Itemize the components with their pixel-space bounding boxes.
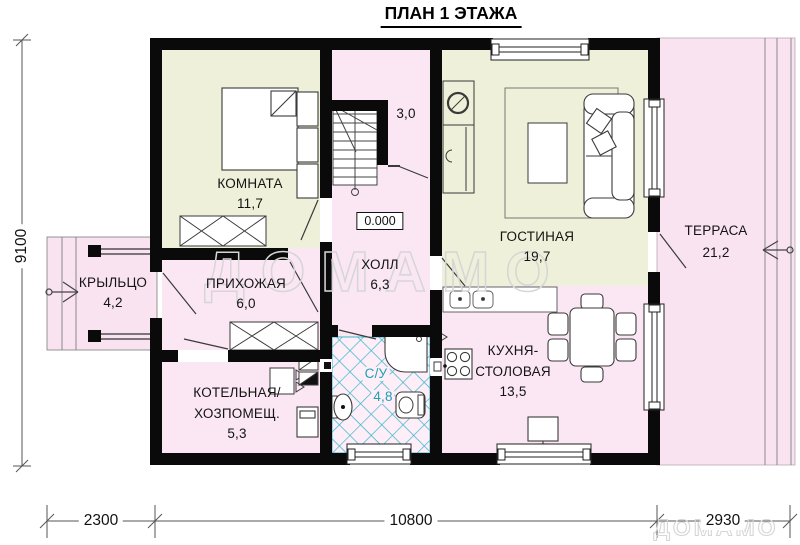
room-label-kotelnaya-line1: КОТЕЛЬНАЯ/ bbox=[193, 386, 280, 400]
room-label-komnata: КОМНАТА bbox=[217, 177, 282, 191]
page-title: ПЛАН 1 ЭТАЖА bbox=[381, 3, 522, 28]
room-area-komnata: 11,7 bbox=[237, 197, 263, 211]
room-area-porch: 4,2 bbox=[103, 296, 122, 310]
washing-machine bbox=[297, 407, 318, 437]
room-area-hall: 6,3 bbox=[370, 278, 389, 292]
room-area-kitchen: 13,5 bbox=[499, 385, 526, 399]
shower bbox=[385, 332, 427, 372]
room-label-sanuzel: С/У bbox=[363, 367, 390, 381]
bathroom-sink bbox=[332, 394, 352, 420]
room-area-prihozhaya: 6,0 bbox=[236, 297, 255, 311]
window-bottom-bathroom bbox=[347, 444, 411, 464]
floor-plan-page: ДОМАМО ДОМАМО ПЛАН 1 ЭТАЖА 0.000 КОМНАТА… bbox=[0, 0, 800, 545]
level-mark: 0.000 bbox=[356, 212, 403, 230]
room-label-prihozhaya: ПРИХОЖАЯ bbox=[206, 277, 286, 291]
room-area-kotelnaya: 5,3 bbox=[227, 427, 246, 441]
window-right-upper bbox=[644, 99, 664, 197]
hallway-wardrobe bbox=[230, 322, 318, 350]
room-label-terrace: ТЕРРАСА bbox=[685, 224, 748, 238]
staircase bbox=[333, 105, 377, 196]
dimension-bottom-1: 2300 bbox=[79, 512, 123, 530]
room-area-terrace: 21,2 bbox=[702, 246, 729, 260]
sofa bbox=[584, 94, 634, 218]
dimension-left: 9100 bbox=[13, 224, 31, 268]
room-label-porch: КРЫЛЬЦО bbox=[79, 276, 147, 290]
room-label-gostinaya: ГОСТИНАЯ bbox=[500, 230, 574, 244]
room-label-kitchen-line2: СТОЛОВАЯ bbox=[475, 365, 551, 379]
window-top bbox=[491, 39, 589, 60]
room-label-hall: ХОЛЛ bbox=[361, 258, 398, 272]
toilet bbox=[396, 392, 425, 418]
room-label-kitchen-line1: КУХНЯ- bbox=[488, 344, 539, 358]
room-area-closet: 3,0 bbox=[396, 107, 415, 121]
window-bottom-kitchen bbox=[497, 444, 591, 464]
room-area-gostinaya: 19,7 bbox=[523, 250, 550, 264]
dimension-bottom-3: 2930 bbox=[701, 512, 745, 530]
stove bbox=[445, 349, 472, 379]
room-label-kotelnaya-line2: ХОЗПОМЕЩ. bbox=[194, 407, 280, 421]
room-area-sanuzel: 4,8 bbox=[371, 390, 394, 404]
dimension-bottom-2: 10800 bbox=[384, 512, 437, 530]
window-right-lower bbox=[644, 304, 664, 410]
